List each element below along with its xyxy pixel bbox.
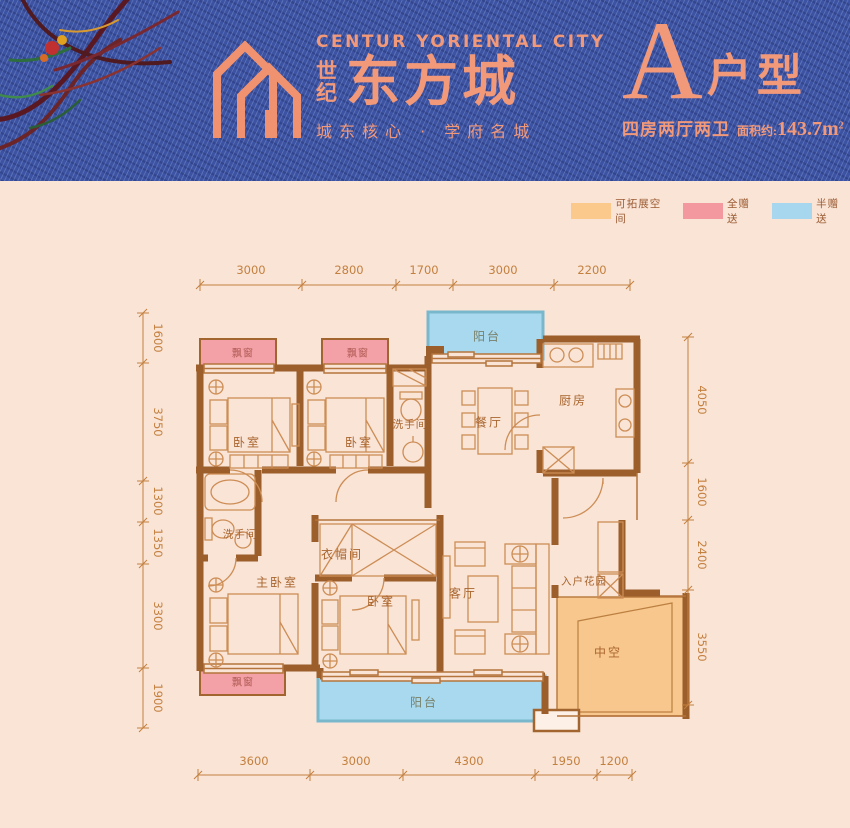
bed-icon-master bbox=[209, 578, 298, 667]
shower-icon bbox=[393, 369, 426, 386]
dim-right-4: 3550 bbox=[695, 632, 709, 661]
ac-unit-box bbox=[534, 710, 579, 731]
kitchen-column-icon bbox=[543, 447, 574, 473]
dim-top-5: 2200 bbox=[577, 263, 606, 277]
room-label-balcony-bottom: 阳台 bbox=[410, 694, 438, 711]
room-label-entry-garden: 入户花园 bbox=[561, 574, 607, 589]
floorplan-poster: CENTUR YORIENTAL CITY 世纪 东方城 城东核心 · 学府名城… bbox=[0, 0, 850, 828]
room-label-bedroom-a: 卧室 bbox=[233, 434, 261, 451]
dim-top-1: 3000 bbox=[236, 263, 265, 277]
dim-bottom-3: 4300 bbox=[454, 754, 483, 768]
room-label-bath-upper: 洗手间 bbox=[393, 417, 428, 432]
dim-left-4: 1350 bbox=[151, 528, 165, 557]
dim-left-1: 1600 bbox=[151, 323, 165, 352]
room-label-bay-c: 飘窗 bbox=[232, 674, 254, 689]
dim-top-3: 1700 bbox=[409, 263, 438, 277]
bathtub-icon bbox=[205, 474, 255, 510]
dim-bottom-1: 3600 bbox=[239, 754, 268, 768]
room-label-bedroom-c: 卧室 bbox=[367, 593, 395, 610]
dim-left-6: 1900 bbox=[151, 683, 165, 712]
kitchen-sink-icon bbox=[543, 344, 622, 367]
bed-icon-bedroom-b bbox=[307, 380, 384, 468]
bed-icon-bedroom-a bbox=[209, 380, 299, 468]
room-label-master-bedroom: 主卧室 bbox=[256, 574, 298, 591]
dim-bottom-2: 3000 bbox=[341, 754, 370, 768]
room-label-dining: 餐厅 bbox=[475, 414, 503, 431]
dim-right-3: 2400 bbox=[695, 540, 709, 569]
dim-bottom-4: 1950 bbox=[551, 754, 580, 768]
dim-bottom-5: 1200 bbox=[599, 754, 628, 768]
dim-right-2: 1600 bbox=[695, 477, 709, 506]
room-label-bedroom-b: 卧室 bbox=[345, 434, 373, 451]
dim-left-3: 1300 bbox=[151, 486, 165, 515]
room-label-living: 客厅 bbox=[449, 585, 477, 602]
stove-icon bbox=[616, 389, 634, 437]
dim-right-1: 4050 bbox=[695, 385, 709, 414]
dim-left-5: 3300 bbox=[151, 601, 165, 630]
room-label-void: 中空 bbox=[594, 644, 622, 661]
dim-top-4: 3000 bbox=[488, 263, 517, 277]
room-label-bay-a: 飘窗 bbox=[232, 345, 254, 360]
room-label-cloakroom: 衣帽间 bbox=[321, 546, 363, 563]
room-label-bath-lower: 洗手间 bbox=[223, 527, 258, 542]
room-label-balcony-top: 阳台 bbox=[473, 328, 501, 345]
room-label-bay-b: 飘窗 bbox=[347, 345, 369, 360]
dim-left-2: 3750 bbox=[151, 407, 165, 436]
room-label-kitchen: 厨房 bbox=[559, 392, 587, 409]
basin-icon-upper bbox=[403, 436, 423, 462]
dim-top-2: 2800 bbox=[334, 263, 363, 277]
